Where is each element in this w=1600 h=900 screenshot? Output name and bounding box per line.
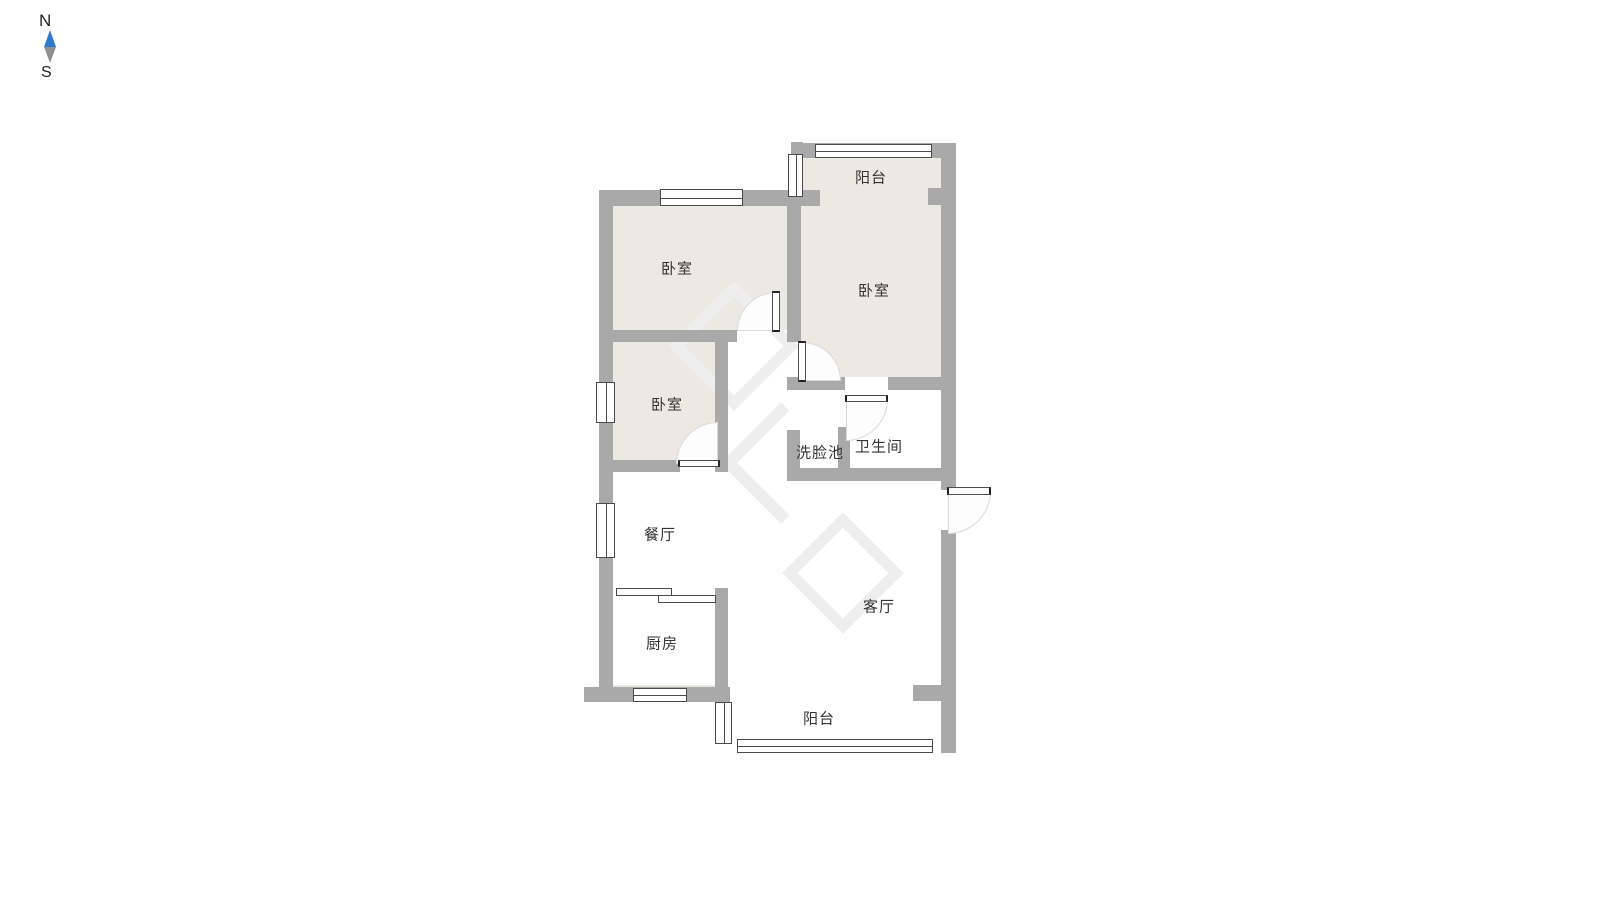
room-label-bedroom-right: 卧室 <box>858 280 890 301</box>
room-balcony-bottom <box>732 702 941 739</box>
window <box>596 382 615 423</box>
wall <box>599 460 680 472</box>
window <box>596 503 615 558</box>
entry-door-leaf <box>947 487 991 495</box>
wall <box>787 468 941 481</box>
window <box>633 688 687 702</box>
compass-north-label: N <box>39 11 51 31</box>
window <box>737 739 933 753</box>
wall <box>599 330 737 342</box>
room-label-dining: 餐厅 <box>644 524 676 545</box>
room-label-bathroom: 卫生间 <box>855 436 903 457</box>
compass-south-label: S <box>41 64 52 82</box>
room-label-washbasin: 洗脸池 <box>796 442 844 463</box>
floor-plan-page: N S <box>0 0 1600 900</box>
wall <box>599 190 613 702</box>
room-balcony-top-and-bedroom-right <box>801 158 941 377</box>
door-leaf <box>772 291 780 332</box>
sliding-door-leaf <box>658 595 716 603</box>
room-label-bedroom-top-left: 卧室 <box>661 258 693 279</box>
compass-needle-south-icon <box>44 47 56 63</box>
door-leaf <box>845 395 888 402</box>
window <box>788 154 803 197</box>
window <box>815 144 932 158</box>
room-label-bedroom-mid-left: 卧室 <box>651 394 683 415</box>
window <box>660 189 743 206</box>
wall <box>941 143 956 490</box>
wall <box>787 196 801 342</box>
room-label-kitchen: 厨房 <box>646 633 678 654</box>
room-label-balcony-bottom: 阳台 <box>803 708 835 729</box>
wall <box>888 377 941 390</box>
entry-door-swing <box>948 491 991 534</box>
door-leaf <box>678 460 720 467</box>
door-leaf <box>798 341 806 382</box>
wall <box>941 530 956 753</box>
compass: N S <box>30 10 70 90</box>
room-label-living: 客厅 <box>863 596 895 617</box>
window <box>715 702 732 744</box>
compass-needle-north-icon <box>44 30 56 47</box>
wall <box>715 588 728 702</box>
room-label-balcony-top: 阳台 <box>855 167 887 188</box>
wall <box>913 685 941 701</box>
wall <box>928 188 941 205</box>
